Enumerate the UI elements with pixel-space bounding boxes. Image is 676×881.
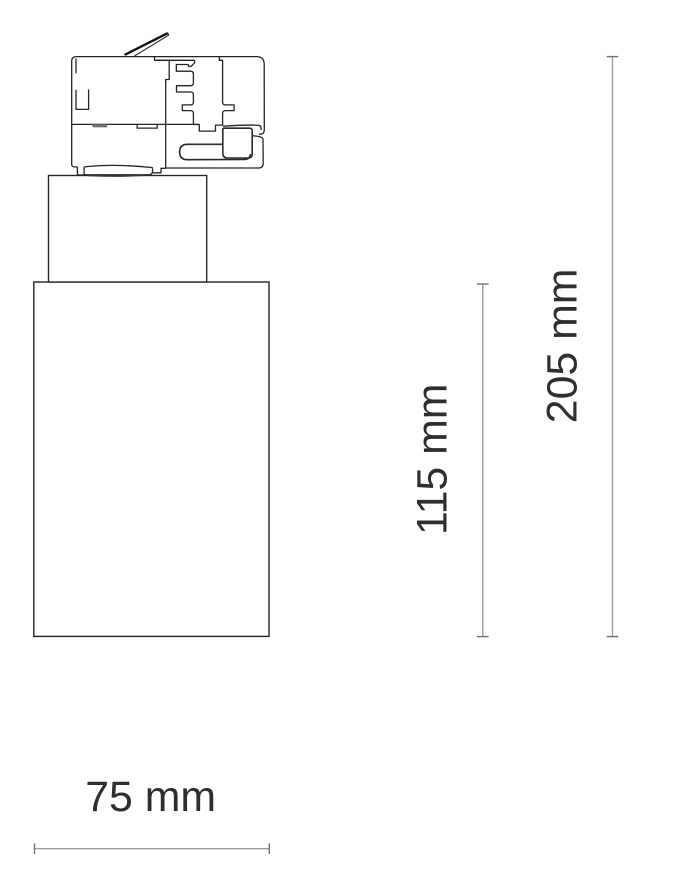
svg-text:75 mm: 75 mm bbox=[85, 773, 216, 821]
svg-text:205 mm: 205 mm bbox=[539, 269, 587, 424]
svg-text:115 mm: 115 mm bbox=[409, 384, 457, 535]
